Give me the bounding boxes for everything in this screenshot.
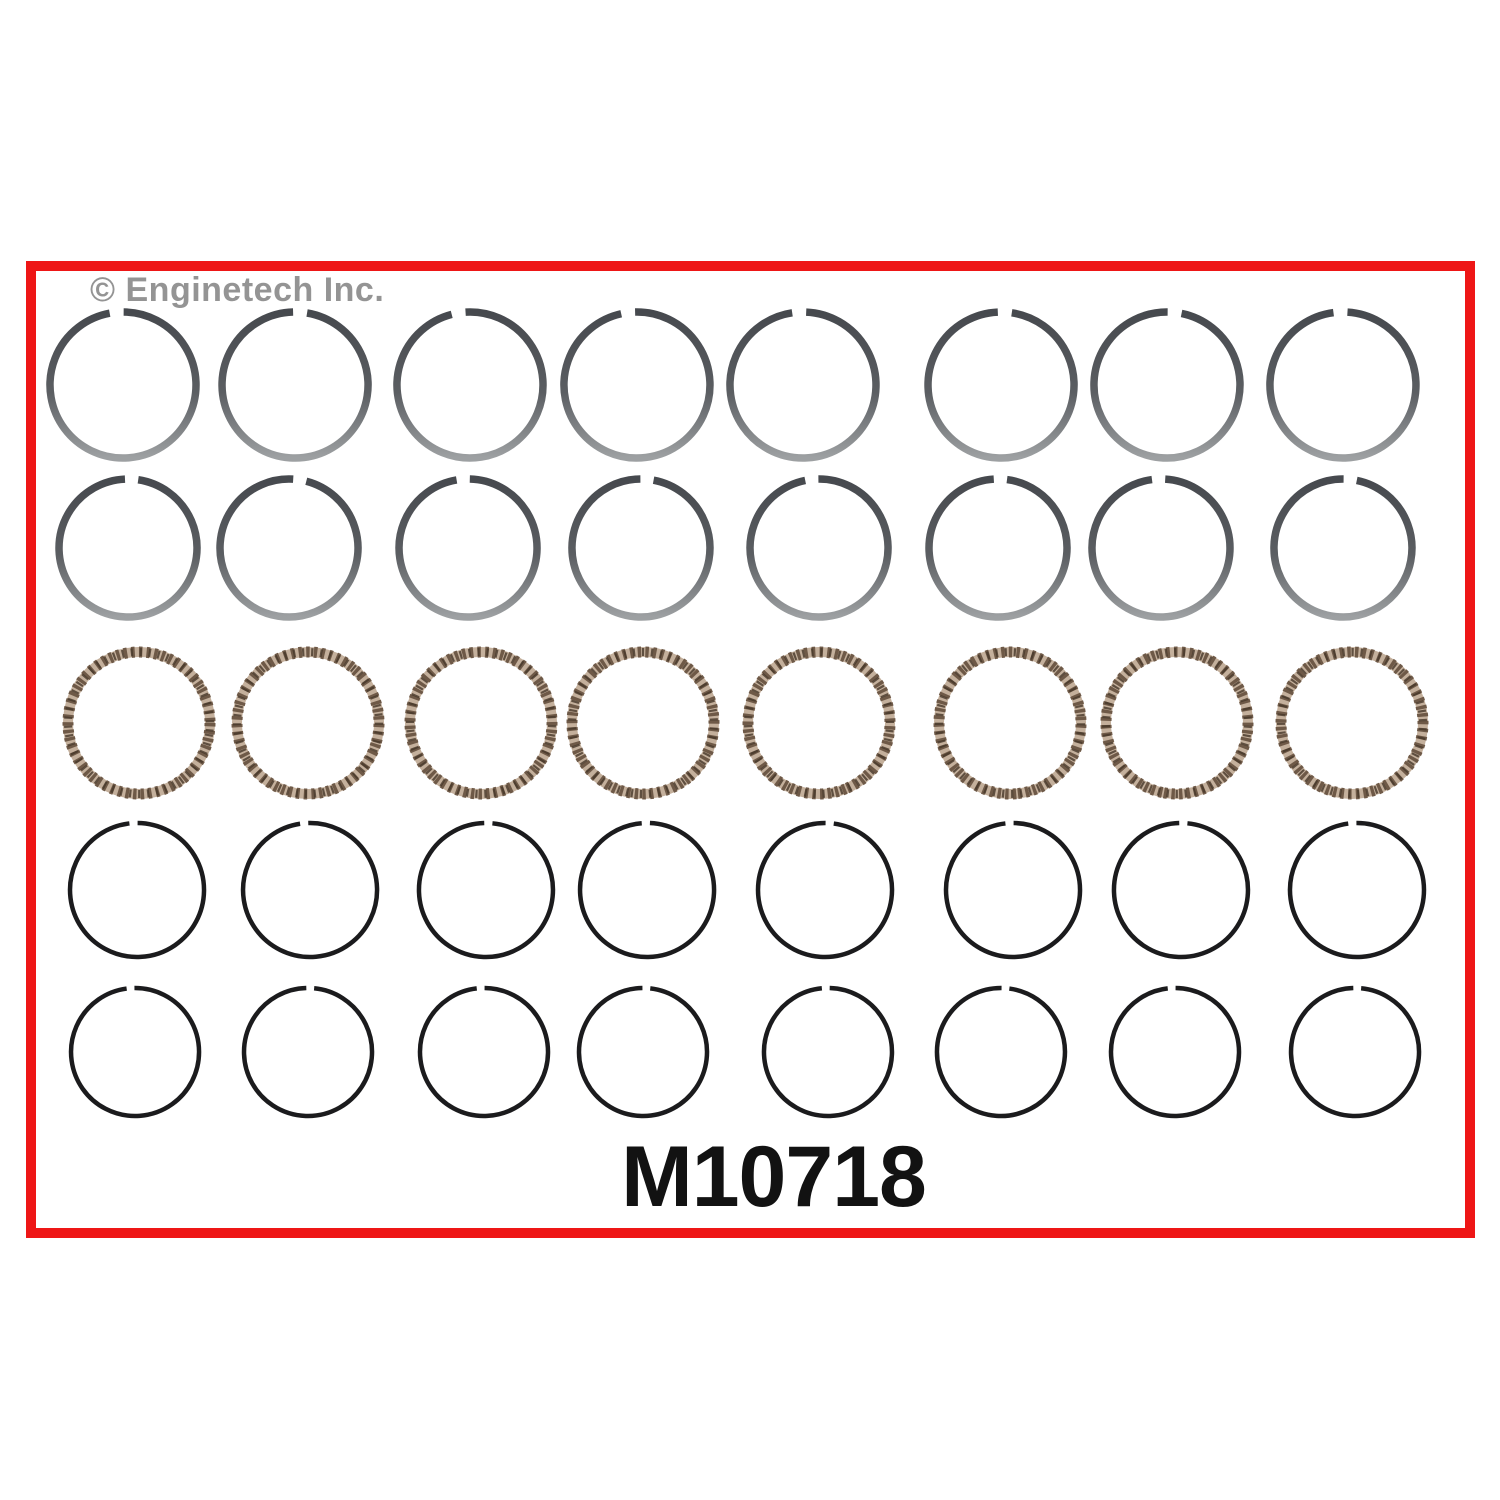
piston-ring [1270, 312, 1416, 458]
piston-ring [929, 479, 1067, 617]
oil-ring-texture [727, 631, 912, 816]
piston-ring [50, 312, 196, 458]
part-number: M10718 [49, 1134, 1498, 1220]
piston-ring [222, 312, 368, 458]
product-photo: © Enginetech Inc. M10718 [0, 0, 1500, 1500]
piston-ring [580, 823, 714, 957]
compression-ring-row-1 [50, 312, 1416, 458]
piston-ring [71, 988, 199, 1116]
oil-ring-texture [1090, 636, 1264, 810]
piston-ring [572, 479, 710, 617]
piston-ring [1111, 988, 1239, 1116]
oil-ring-texture [391, 633, 571, 813]
piston-ring [946, 823, 1080, 957]
oil-ring-texture [1093, 639, 1261, 807]
oil-ring-texture [58, 642, 220, 804]
piston-ring [758, 823, 892, 957]
piston-ring [1094, 312, 1240, 458]
oil-ring-texture [922, 635, 1098, 811]
piston-ring [399, 479, 537, 617]
piston-ring [220, 479, 358, 617]
second-compression-ring-row-1 [70, 823, 1424, 957]
rings-canvas [0, 0, 1500, 1500]
piston-ring [937, 988, 1065, 1116]
rings-root [50, 312, 1452, 1116]
piston-ring [70, 823, 204, 957]
piston-ring [397, 312, 543, 458]
piston-ring [764, 988, 892, 1116]
second-compression-ring-row-2 [71, 988, 1419, 1116]
piston-ring [419, 823, 553, 957]
piston-ring [1114, 823, 1248, 957]
oil-ring-texture [933, 646, 1087, 800]
compression-ring-row-2 [59, 479, 1412, 617]
piston-ring [928, 312, 1074, 458]
piston-ring [1092, 479, 1230, 617]
piston-ring [244, 988, 372, 1116]
oil-ring-texture [559, 639, 727, 807]
piston-ring [564, 312, 710, 458]
piston-ring [730, 312, 876, 458]
piston-ring [1274, 479, 1412, 617]
piston-ring [1290, 823, 1424, 957]
piston-ring [1291, 988, 1419, 1116]
piston-ring [750, 479, 888, 617]
piston-ring [420, 988, 548, 1116]
piston-ring [243, 823, 377, 957]
piston-ring [59, 479, 197, 617]
oil-ring-texture [219, 634, 396, 811]
piston-ring [579, 988, 707, 1116]
oil-ring-row [58, 623, 1453, 824]
